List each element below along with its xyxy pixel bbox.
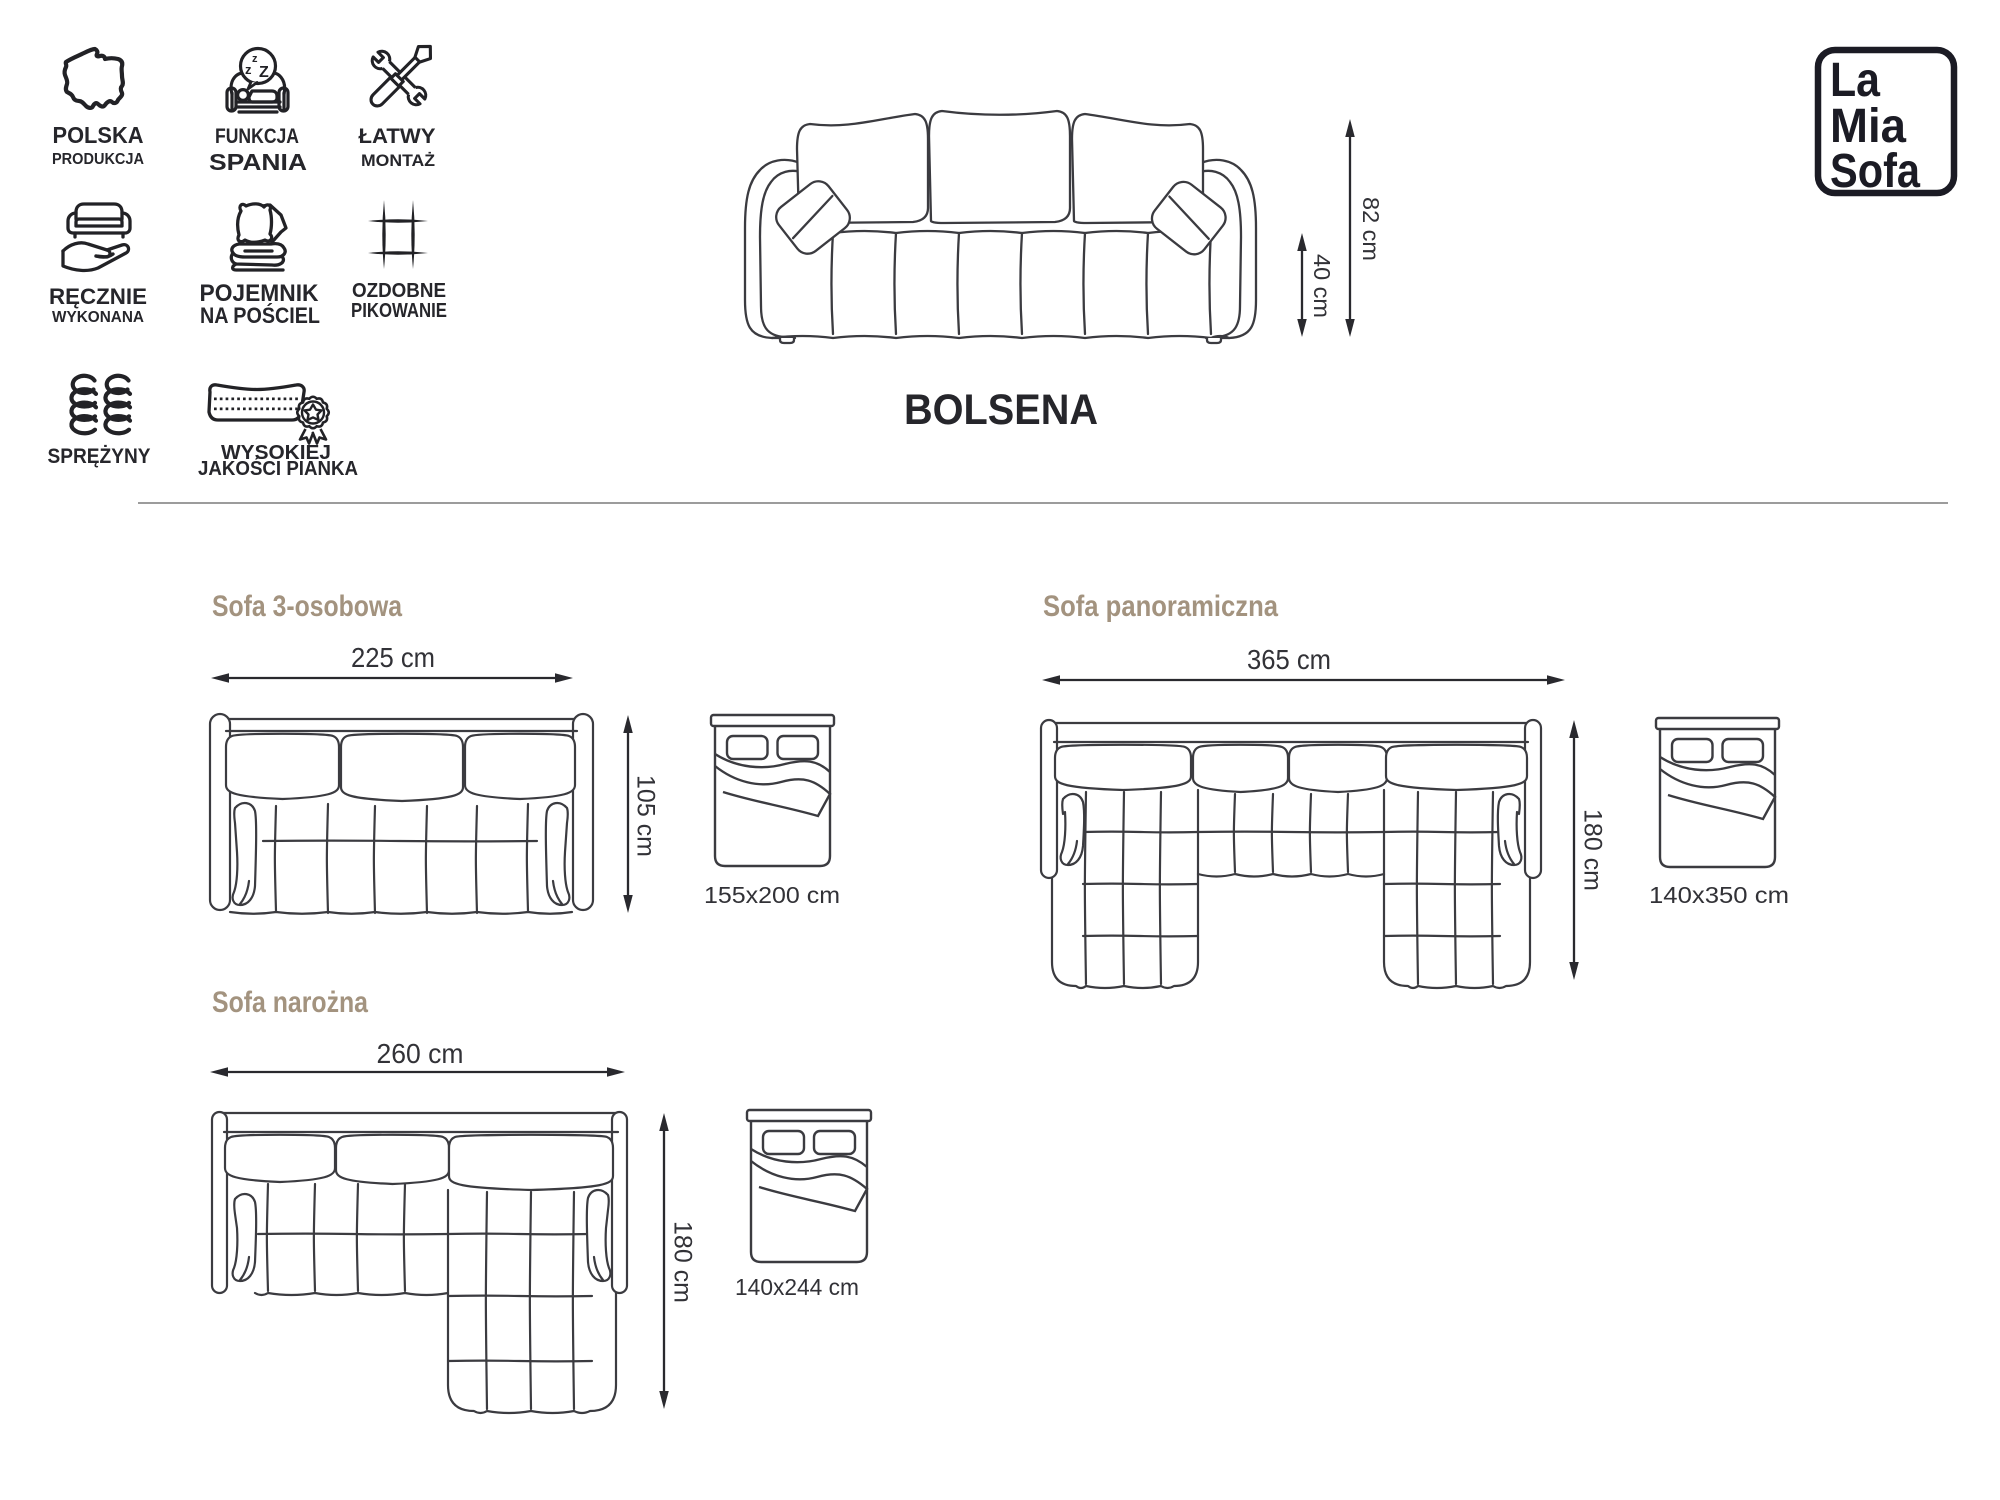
svg-text:ŁATWY: ŁATWY	[359, 124, 436, 148]
svg-text:PRODUKCJA: PRODUKCJA	[52, 151, 144, 168]
svg-text:WYKONANA: WYKONANA	[52, 309, 144, 326]
svg-text:SPRĘŻYNY: SPRĘŻYNY	[48, 445, 151, 468]
svg-text:PIKOWANIE: PIKOWANIE	[351, 300, 447, 322]
svg-text:40 cm: 40 cm	[1309, 254, 1335, 318]
svg-text:POLSKA: POLSKA	[53, 122, 144, 148]
svg-text:MONTAŻ: MONTAŻ	[361, 151, 435, 170]
svg-text:Z: Z	[259, 64, 269, 81]
svg-text:SPANIA: SPANIA	[209, 149, 307, 175]
svg-text:FUNKCJA: FUNKCJA	[215, 124, 299, 148]
svg-text:140x244 cm: 140x244 cm	[735, 1274, 859, 1300]
svg-text:82 cm: 82 cm	[1358, 197, 1384, 261]
svg-text:z: z	[245, 62, 252, 77]
svg-text:BOLSENA: BOLSENA	[904, 386, 1098, 434]
svg-text:365 cm: 365 cm	[1247, 644, 1331, 675]
svg-text:180 cm: 180 cm	[1579, 809, 1607, 891]
svg-text:NA POŚCIEL: NA POŚCIEL	[200, 303, 320, 328]
svg-text:Sofa: Sofa	[1830, 145, 1920, 198]
svg-text:105 cm: 105 cm	[632, 775, 660, 857]
svg-text:155x200 cm: 155x200 cm	[704, 882, 840, 908]
svg-text:RĘCZNIE: RĘCZNIE	[49, 284, 147, 309]
svg-text:225 cm: 225 cm	[351, 642, 435, 673]
svg-text:Sofa 3-osobowa: Sofa 3-osobowa	[212, 590, 402, 623]
svg-text:180 cm: 180 cm	[669, 1221, 697, 1303]
svg-text:z: z	[252, 53, 258, 65]
svg-text:OZDOBNE: OZDOBNE	[352, 280, 446, 302]
svg-text:Sofa panoramiczna: Sofa panoramiczna	[1043, 590, 1278, 623]
svg-text:260 cm: 260 cm	[377, 1038, 464, 1069]
svg-text:Sofa narożna: Sofa narożna	[212, 986, 368, 1019]
svg-text:140x350 cm: 140x350 cm	[1649, 882, 1789, 908]
svg-text:JAKOŚCI PIANKA: JAKOŚCI PIANKA	[198, 456, 358, 480]
